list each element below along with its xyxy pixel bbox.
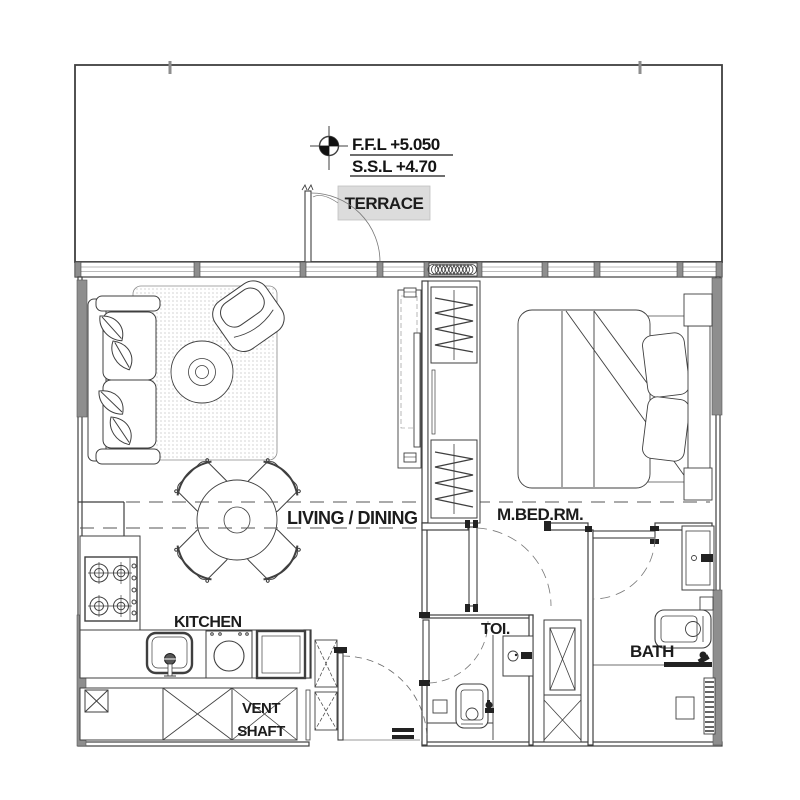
level-symbol-quadrant-ne bbox=[329, 137, 339, 147]
washing-machine bbox=[206, 631, 252, 678]
wc-toilet bbox=[456, 684, 488, 728]
floor-plan-drawing: F.F.L +5.050 S.S.L +4.70 TERRACE bbox=[0, 0, 800, 800]
window-wall bbox=[75, 262, 722, 277]
roll-holder bbox=[700, 597, 713, 610]
wardrobe bbox=[428, 281, 480, 523]
shower-partition bbox=[664, 662, 712, 667]
shower-drain bbox=[704, 678, 715, 734]
tv-unit bbox=[398, 288, 421, 468]
room-label-bath: BATH bbox=[630, 642, 674, 661]
duct-shaft bbox=[544, 620, 581, 742]
ffl-level-text: F.F.L +5.050 bbox=[352, 135, 440, 154]
room-label-kitchen: KITCHEN bbox=[174, 614, 242, 631]
ssl-level-text: S.S.L +4.70 bbox=[352, 157, 436, 176]
vent-coil-section bbox=[428, 263, 477, 276]
shower-seat bbox=[676, 697, 694, 719]
dining-table bbox=[197, 480, 277, 560]
door-swing-arc bbox=[477, 528, 551, 606]
door-swing-arc bbox=[429, 621, 488, 683]
toilet-basin bbox=[503, 636, 533, 676]
gas-hob bbox=[85, 557, 137, 621]
bedroom-door bbox=[465, 520, 551, 612]
bed bbox=[518, 294, 712, 500]
room-label-toilet: TOI. bbox=[481, 621, 510, 638]
floor-drain bbox=[433, 700, 447, 713]
floor-plan-sheet: F.F.L +5.050 S.S.L +4.70 TERRACE bbox=[0, 0, 800, 800]
room-label-master-bedroom: M.BED.RM. bbox=[497, 505, 583, 524]
vanity-sink bbox=[682, 526, 714, 590]
dining-set bbox=[172, 456, 303, 585]
bath-room bbox=[593, 526, 715, 734]
level-marker: F.F.L +5.050 S.S.L +4.70 bbox=[310, 126, 453, 176]
bath-door bbox=[585, 526, 659, 599]
toilet-room bbox=[419, 612, 533, 740]
level-symbol-quadrant-sw bbox=[320, 146, 330, 156]
toilet-door bbox=[419, 612, 488, 686]
kitchen-sink bbox=[147, 633, 192, 676]
nightstand bbox=[684, 294, 712, 326]
coffee-table bbox=[171, 341, 233, 403]
door-swing-arc bbox=[593, 537, 655, 599]
room-label-living-dining: LIVING / DINING bbox=[287, 508, 418, 528]
entrance-door bbox=[334, 647, 427, 740]
headboard bbox=[688, 326, 710, 472]
door-swing-arc bbox=[343, 656, 427, 740]
sofa bbox=[88, 296, 160, 464]
room-label-shaft: SHAFT bbox=[237, 723, 285, 740]
room-label-vent: VENT bbox=[242, 700, 280, 717]
vanity-tap bbox=[701, 554, 713, 562]
terrace-label: TERRACE bbox=[338, 186, 430, 220]
nightstand bbox=[684, 468, 712, 500]
shoe-cabinet bbox=[315, 640, 337, 730]
refrigerator bbox=[257, 631, 305, 678]
